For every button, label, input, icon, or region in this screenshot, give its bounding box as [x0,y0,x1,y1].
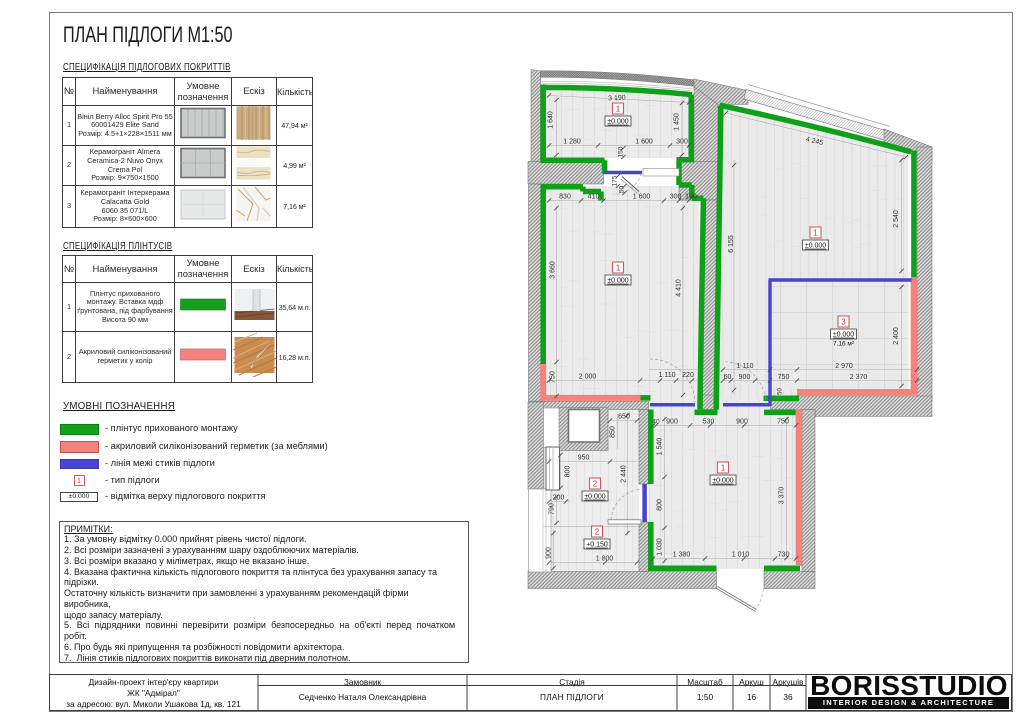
svg-text:530: 530 [703,419,715,426]
svg-text:2: 2 [595,528,600,537]
svg-text:1 110: 1 110 [737,363,754,370]
svg-text:1 800: 1 800 [596,556,614,563]
svg-text:±0.000: ±0.000 [833,332,854,339]
svg-text:1 380: 1 380 [673,552,691,559]
svg-text:±0.000: ±0.000 [712,478,733,485]
svg-text:±0.000: ±0.000 [584,494,605,501]
svg-text:1: 1 [721,464,726,473]
svg-text:1 600: 1 600 [633,194,651,201]
svg-text:2 370: 2 370 [850,374,868,381]
svg-text:40: 40 [652,419,660,426]
svg-text:800: 800 [657,499,664,511]
svg-text:2 970: 2 970 [835,363,853,370]
svg-text:3 660: 3 660 [550,261,557,279]
svg-text:1 600: 1 600 [635,139,653,146]
svg-text:650: 650 [618,414,630,421]
svg-text:900: 900 [546,547,553,559]
svg-text:1: 1 [813,229,818,238]
svg-text:190: 190 [685,194,697,201]
svg-text:950: 950 [578,455,590,462]
svg-text:3 370: 3 370 [779,487,786,505]
svg-text:4 410: 4 410 [676,279,683,297]
svg-text:1 280: 1 280 [563,139,581,146]
svg-text:2 540: 2 540 [893,210,900,228]
svg-text:±0.000: ±0.000 [805,243,826,250]
svg-text:300: 300 [670,194,682,201]
svg-text:+0.150: +0.150 [586,542,608,549]
svg-text:1 450: 1 450 [674,113,681,131]
svg-text:6 155: 6 155 [728,235,735,253]
svg-text:3 190: 3 190 [608,95,626,103]
svg-text:730: 730 [778,552,790,559]
svg-text:410: 410 [588,194,600,201]
svg-text:1: 1 [616,264,621,273]
svg-text:1 110: 1 110 [659,372,676,379]
svg-text:175: 175 [612,175,619,186]
svg-text:±0.000: ±0.000 [607,119,628,126]
svg-text:50: 50 [778,388,784,395]
svg-text:1 010: 1 010 [732,552,750,559]
svg-text:1 030: 1 030 [657,538,664,556]
svg-text:1: 1 [616,105,621,114]
svg-text:750: 750 [777,419,789,426]
svg-text:2 400: 2 400 [893,327,900,345]
svg-text:3: 3 [841,318,846,327]
svg-text:150: 150 [618,146,625,157]
svg-text:800: 800 [565,466,572,478]
svg-text:300: 300 [676,139,688,146]
svg-text:900: 900 [666,419,678,426]
svg-text:2 000: 2 000 [579,374,597,381]
svg-text:900: 900 [736,419,748,426]
svg-text:±0.000: ±0.000 [607,278,628,285]
svg-text:2: 2 [593,480,598,489]
svg-text:7.16 м²: 7.16 м² [833,341,855,348]
svg-text:830: 830 [559,194,571,201]
svg-text:220: 220 [682,372,694,379]
svg-text:900: 900 [739,374,751,381]
svg-text:1 640: 1 640 [548,111,555,129]
svg-text:750: 750 [778,374,790,381]
svg-text:750: 750 [550,371,557,383]
svg-text:50: 50 [619,186,626,194]
svg-text:790: 790 [549,503,556,515]
svg-text:60: 60 [724,374,732,381]
svg-text:200: 200 [553,495,565,502]
svg-text:2 440: 2 440 [621,465,628,483]
svg-text:850: 850 [610,426,617,438]
svg-text:1 540: 1 540 [657,438,664,456]
